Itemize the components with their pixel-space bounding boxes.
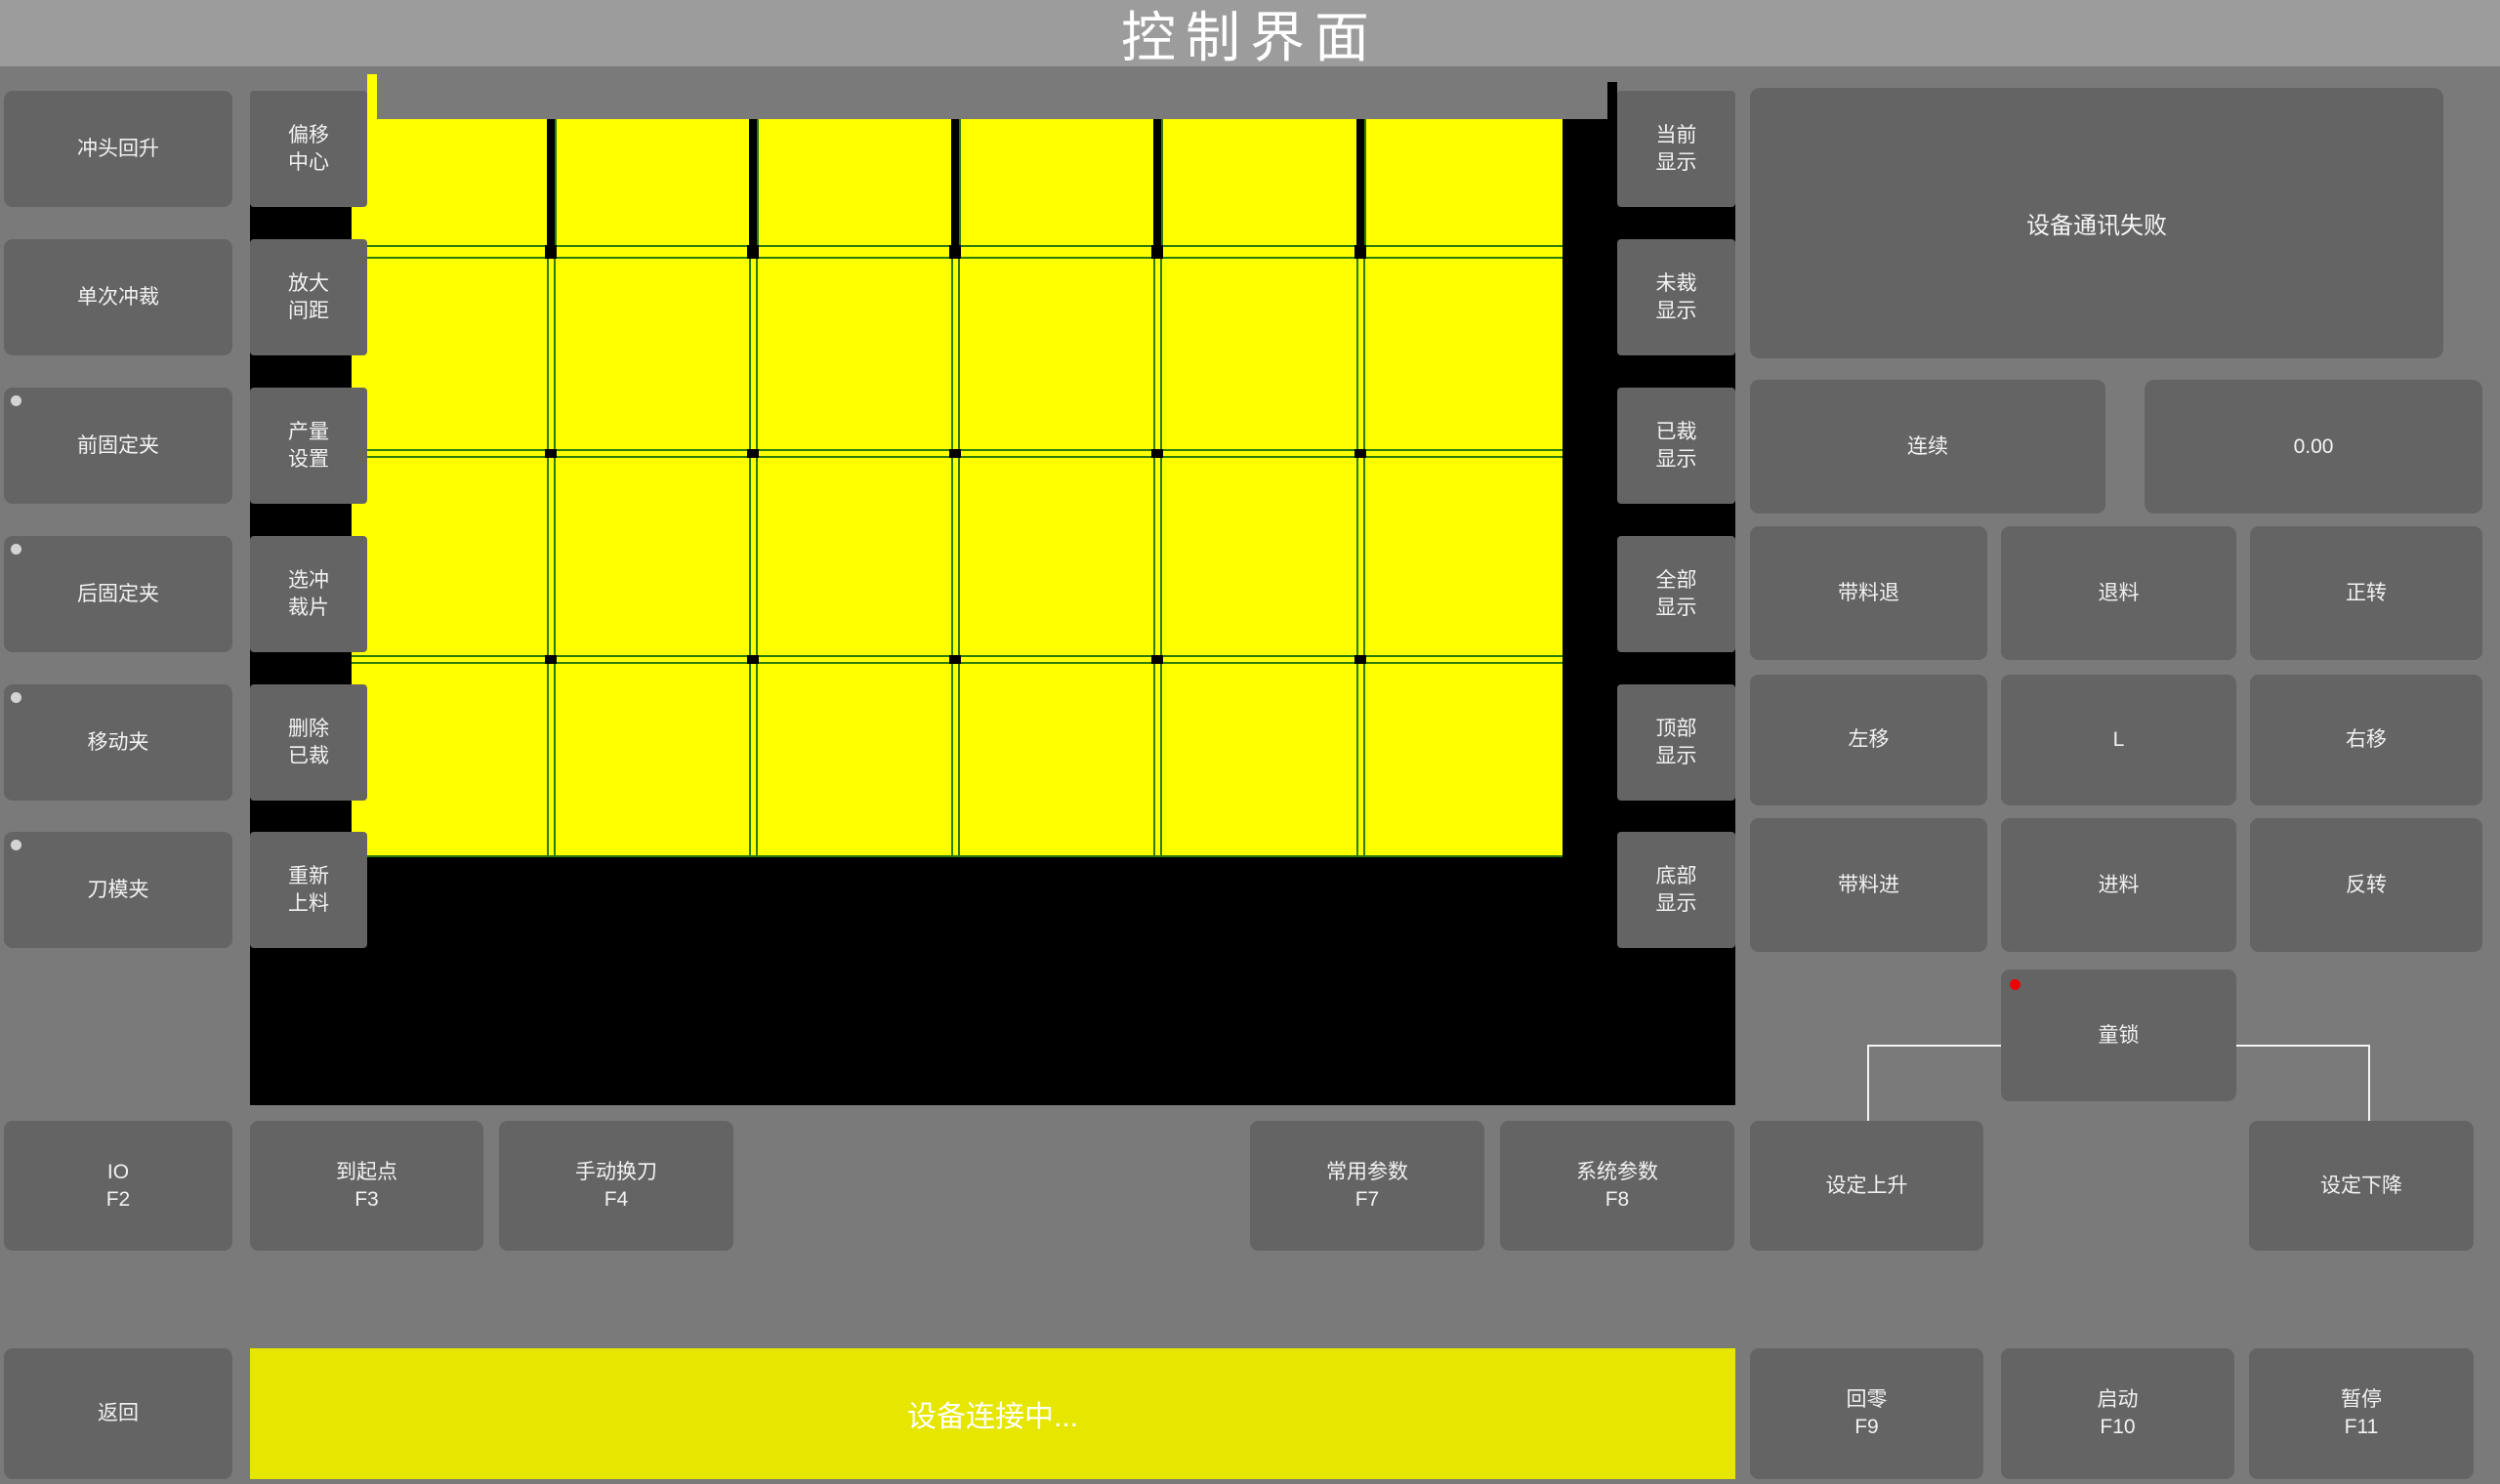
button-label: 刀模夹 <box>88 877 149 904</box>
button-label: 手动换刀 F4 <box>575 1159 657 1214</box>
rear-clamp-button[interactable]: 后固定夹 <box>4 536 232 652</box>
button-label: 系统参数 F8 <box>1576 1159 1658 1214</box>
grid-line <box>1161 119 1163 245</box>
delete-cut-button[interactable]: 删除 已裁 <box>250 684 367 801</box>
uncut-display-button[interactable]: 未裁 显示 <box>1617 239 1735 355</box>
button-label: 暂停 F11 <box>2341 1386 2382 1441</box>
grid-line <box>756 259 758 857</box>
button-label: 退料 <box>2099 580 2140 607</box>
comm-status-text: 设备通讯失败 <box>2026 206 2167 240</box>
grid-line <box>1160 259 1162 857</box>
move-left-button[interactable]: 左移 <box>1750 675 1987 805</box>
button-label: 冲头回升 <box>77 136 159 163</box>
value-text: 0.00 <box>2294 435 2334 459</box>
page-title: 控制界面 <box>0 0 2500 66</box>
origin-f3-button[interactable]: 到起点 F3 <box>250 1121 483 1251</box>
grid-line <box>1354 245 1366 259</box>
child-lock-button[interactable]: 童锁 <box>2001 969 2236 1101</box>
single-punch-button[interactable]: 单次冲裁 <box>4 239 232 355</box>
enlarge-gap-button[interactable]: 放大 间距 <box>250 239 367 355</box>
grid-line <box>554 259 556 857</box>
button-label: 设定下降 <box>2320 1173 2402 1200</box>
button-label: 进料 <box>2099 872 2140 899</box>
button-label: 单次冲裁 <box>77 284 159 311</box>
grid-line <box>555 119 557 245</box>
grid-line <box>747 449 759 458</box>
start-f10-button[interactable]: 启动 F10 <box>2001 1348 2234 1479</box>
reload-material-button[interactable]: 重新 上料 <box>250 832 367 948</box>
child-lock-link-line <box>1867 1045 1869 1121</box>
button-label: 反转 <box>2346 872 2387 899</box>
button-label: 带料退 <box>1838 580 1899 607</box>
grid-line <box>749 259 751 857</box>
child-lock-link-line <box>1867 1045 2001 1047</box>
indicator-dot <box>11 395 21 406</box>
strip-forward-button[interactable]: 带料进 <box>1750 818 1987 952</box>
indicator-dot <box>11 840 21 850</box>
top-display-button[interactable]: 顶部 显示 <box>1617 684 1735 801</box>
grid-line <box>545 245 557 259</box>
system-params-f8-button[interactable]: 系统参数 F8 <box>1500 1121 1734 1251</box>
button-label: L <box>2113 726 2125 754</box>
bottom-display-button[interactable]: 底部 显示 <box>1617 832 1735 948</box>
grid-line <box>949 245 961 259</box>
unload-button[interactable]: 退料 <box>2001 526 2236 660</box>
die-clamp-button[interactable]: 刀模夹 <box>4 832 232 948</box>
grid-line <box>1356 119 1364 245</box>
grid-line <box>747 245 759 259</box>
alarm-dot-icon <box>2010 979 2021 990</box>
mode-continuous-button[interactable]: 连续 <box>1750 380 2105 514</box>
grid-line <box>1153 259 1155 857</box>
grid-line <box>1151 245 1163 259</box>
back-button[interactable]: 返回 <box>4 1348 232 1479</box>
button-label: 回零 F9 <box>1847 1386 1888 1441</box>
button-label: 产量 设置 <box>288 419 329 474</box>
indicator-dot <box>11 692 21 703</box>
button-label: 底部 显示 <box>1656 863 1697 918</box>
grid-line <box>958 259 960 857</box>
button-label: 未裁 显示 <box>1656 270 1697 325</box>
forward-rotate-button[interactable]: 正转 <box>2250 526 2482 660</box>
value-display: 0.00 <box>2145 380 2482 514</box>
button-label: 重新 上料 <box>288 863 329 918</box>
select-piece-button[interactable]: 选冲 裁片 <box>250 536 367 652</box>
button-label: 移动夹 <box>88 729 149 757</box>
grid-line <box>749 119 757 245</box>
move-right-button[interactable]: 右移 <box>2250 675 2482 805</box>
button-label: IO F2 <box>106 1159 131 1214</box>
button-label: 连续 <box>1907 433 1948 461</box>
grid-line <box>1151 655 1163 664</box>
sheet-edge-strip <box>367 74 377 119</box>
button-label: 放大 间距 <box>288 270 329 325</box>
strip-back-button[interactable]: 带料退 <box>1750 526 1987 660</box>
pause-f11-button[interactable]: 暂停 F11 <box>2249 1348 2474 1479</box>
grid-line <box>1153 119 1161 245</box>
button-label: 右移 <box>2346 726 2387 754</box>
grid-line <box>545 655 557 664</box>
button-label: 当前 显示 <box>1656 122 1697 177</box>
l-button[interactable]: L <box>2001 675 2236 805</box>
button-label: 删除 已裁 <box>288 716 329 770</box>
feed-button[interactable]: 进料 <box>2001 818 2236 952</box>
grid-line <box>1151 449 1163 458</box>
grid-line <box>1364 119 1366 245</box>
grid-line <box>1356 259 1358 857</box>
button-label: 后固定夹 <box>77 581 159 608</box>
common-params-f7-button[interactable]: 常用参数 F7 <box>1250 1121 1484 1251</box>
offset-center-button[interactable]: 偏移 中心 <box>250 91 367 207</box>
grid-line <box>949 449 961 458</box>
grid-line <box>951 119 959 245</box>
grid-line <box>959 119 961 245</box>
all-display-button[interactable]: 全部 显示 <box>1617 536 1735 652</box>
connection-status-bar: 设备连接中... <box>250 1348 1735 1479</box>
button-label: 返回 <box>98 1400 139 1427</box>
grid-line <box>951 259 953 857</box>
grid-line <box>747 655 759 664</box>
cut-display-button[interactable]: 已裁 显示 <box>1617 388 1735 504</box>
button-label: 到起点 F3 <box>336 1159 397 1214</box>
punch-raise-button[interactable]: 冲头回升 <box>4 91 232 207</box>
current-display-button[interactable]: 当前 显示 <box>1617 91 1735 207</box>
button-label: 正转 <box>2346 580 2387 607</box>
button-label: 童锁 <box>2099 1022 2140 1050</box>
io-f2-button[interactable]: IO F2 <box>4 1121 232 1251</box>
reverse-rotate-button[interactable]: 反转 <box>2250 818 2482 952</box>
grid-line <box>757 119 759 245</box>
grid-line <box>547 119 555 245</box>
comm-status-panel: 设备通讯失败 <box>1750 88 2443 358</box>
front-clamp-button[interactable]: 前固定夹 <box>4 388 232 504</box>
grid-line <box>352 855 1562 857</box>
set-fall-button[interactable]: 设定下降 <box>2249 1121 2474 1251</box>
grid-line <box>1354 449 1366 458</box>
nest-grid[interactable] <box>352 119 1562 857</box>
grid-line <box>547 259 549 857</box>
button-label: 选冲 裁片 <box>288 567 329 622</box>
button-label: 已裁 显示 <box>1656 419 1697 474</box>
button-label: 前固定夹 <box>77 433 159 460</box>
button-label: 顶部 显示 <box>1656 716 1697 770</box>
child-lock-link-line <box>2236 1045 2368 1047</box>
child-lock-link-line <box>2368 1045 2370 1121</box>
indicator-dot <box>11 544 21 555</box>
grid-line <box>1363 259 1365 857</box>
set-rise-button[interactable]: 设定上升 <box>1750 1121 1983 1251</box>
grid-line <box>545 449 557 458</box>
connection-status-text: 设备连接中... <box>907 1392 1078 1435</box>
grid-line <box>949 655 961 664</box>
moving-clamp-button[interactable]: 移动夹 <box>4 684 232 801</box>
button-label: 启动 F10 <box>2098 1386 2139 1441</box>
grid-line <box>1354 655 1366 664</box>
yield-setting-button[interactable]: 产量 设置 <box>250 388 367 504</box>
button-label: 左移 <box>1849 726 1890 754</box>
button-label: 带料进 <box>1838 872 1899 899</box>
button-label: 偏移 中心 <box>288 122 329 177</box>
home-f9-button[interactable]: 回零 F9 <box>1750 1348 1983 1479</box>
canvas-corner-notch <box>1607 82 1617 119</box>
button-label: 常用参数 F7 <box>1326 1159 1408 1214</box>
manual-toolchange-f4-button[interactable]: 手动换刀 F4 <box>499 1121 733 1251</box>
button-label: 全部 显示 <box>1656 567 1697 622</box>
button-label: 设定上升 <box>1826 1173 1908 1200</box>
